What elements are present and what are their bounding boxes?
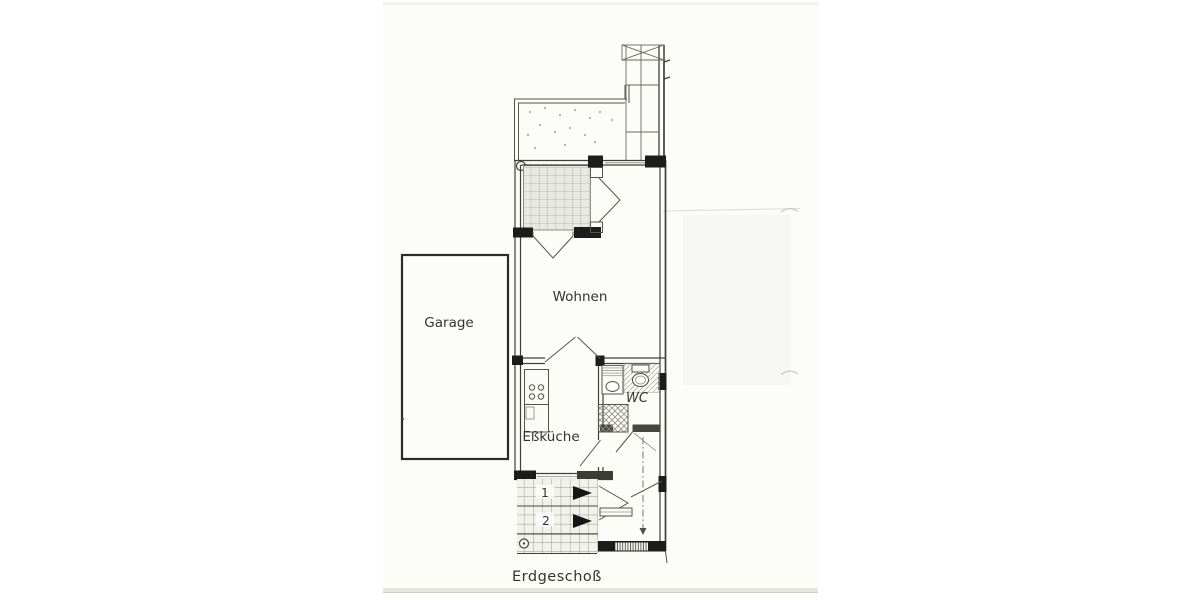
washbasin-icon: [602, 366, 623, 395]
room-label-esskueche: Eßküche: [522, 429, 579, 445]
step-label-2: 2: [542, 514, 550, 528]
floorplan-drawing: Garage Wohnen Eßküche WC 1 2 Erdgeschoß: [0, 0, 1200, 600]
floor-title: Erdgeschoß: [512, 569, 602, 585]
entrance-hall: [600, 437, 647, 535]
room-label-wohnen: Wohnen: [553, 289, 608, 305]
stair-tread: [600, 508, 632, 516]
step-label-1: 1: [541, 486, 549, 500]
door-swing-icon: [599, 178, 620, 222]
gravel-dots: [527, 107, 613, 149]
entrance-threshold: [615, 543, 648, 551]
door-swing-icon: [616, 432, 633, 452]
door-swing-icon: [631, 481, 662, 497]
tiled-porch: [517, 479, 598, 553]
toilet-icon: [632, 365, 649, 387]
door-swing-icon: [580, 440, 601, 466]
cross-brace-icon: [622, 45, 664, 60]
garage-outline: [402, 255, 508, 459]
room-label-wc: WC: [626, 391, 649, 406]
room-label-garage: Garage: [424, 315, 473, 331]
section-arrow-icon: [640, 528, 647, 535]
staircase-icon: [599, 405, 629, 433]
terrace: [514, 85, 629, 171]
door-swing-icon: [545, 337, 600, 362]
kitchen-counter: [525, 370, 549, 433]
door-swing-icon: [533, 236, 573, 258]
glazed-bay-window-grid: [524, 166, 591, 231]
